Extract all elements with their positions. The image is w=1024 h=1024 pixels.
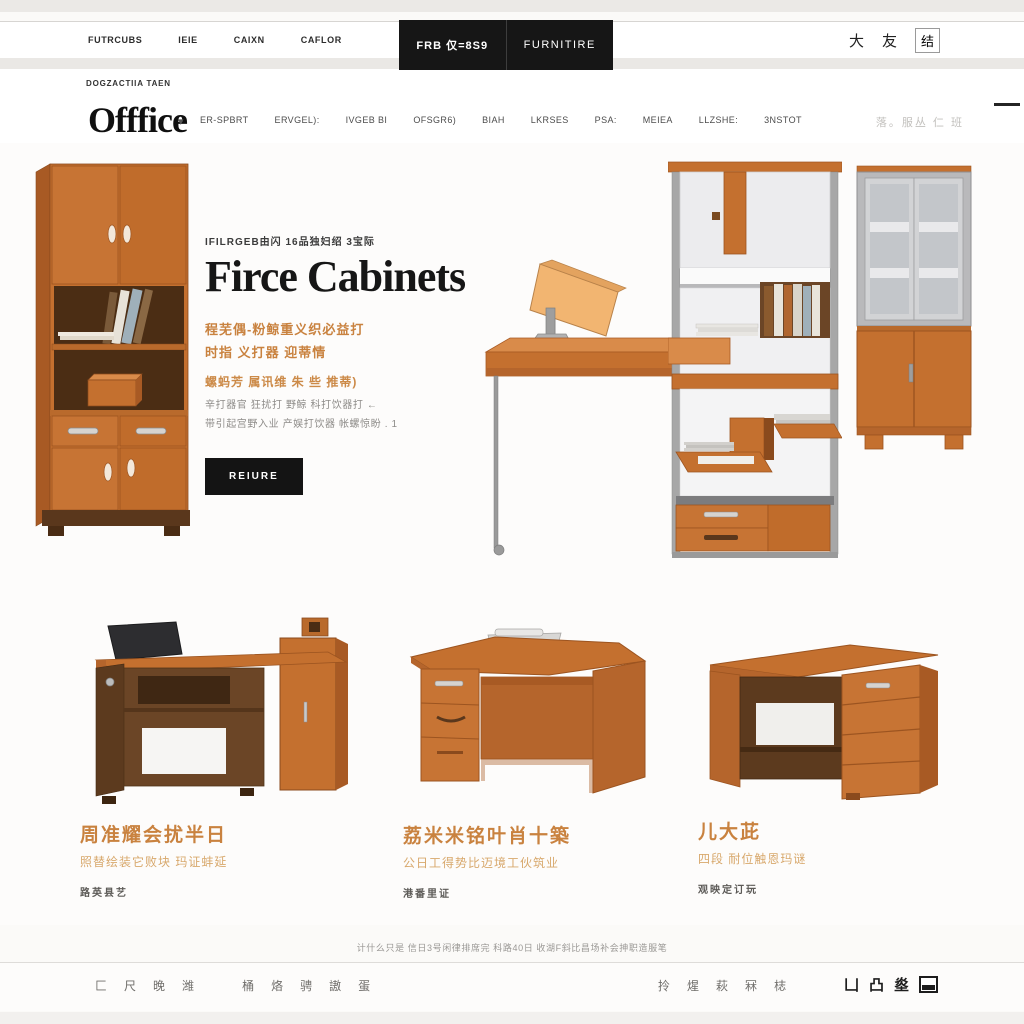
social-icon-2[interactable]: 凸 (869, 974, 884, 995)
photo-icon[interactable] (919, 976, 938, 993)
brand-badge[interactable]: FRB 仅=8S9 FURNITIRE (399, 20, 613, 70)
hero-paragraph-orange: 程芜偶-粉鲸重义织必益打 (205, 320, 480, 340)
hero-cta-button[interactable]: REIURE (205, 458, 303, 495)
product-card[interactable]: 周准耀会扰半日 照替绘装它败块 玛证蚌延 路英县艺 (80, 610, 370, 899)
header-bar: FUTRCUBS IEIE CAIXN CAFLOR FRB 仅=8S9 FUR… (0, 21, 1024, 59)
top-menu: FUTRCUBS IEIE CAIXN CAFLOR (88, 22, 342, 58)
nav-item[interactable]: MEIEA (643, 115, 673, 125)
footer-link[interactable]: 匚 (95, 977, 107, 994)
product-subtitle: 四段 耐位触恩玛谜 (698, 850, 958, 867)
site-logo[interactable]: Offfice (88, 99, 187, 141)
nav-item[interactable]: LLZSHE: (699, 115, 738, 125)
brand-badge-left: FRB 仅=8S9 (399, 20, 507, 70)
account-icon[interactable]: 大 (849, 30, 864, 51)
footer-link[interactable]: 桶 (242, 977, 254, 994)
hero-image-bookcase[interactable] (28, 156, 203, 540)
nav-items: ER-SPBRT ERVGEL): IVGEB BI OFSGR6) BIAH … (200, 97, 802, 143)
hero-paragraph-gray: 带引起宫野入业 产娱打饮器 帐螺惊盼 . 1 (205, 417, 480, 433)
main-nav: Offfice ▾ ER-SPBRT ERVGEL): IVGEB BI OFS… (0, 97, 1024, 144)
nav-right-dash (994, 103, 1020, 106)
hero-paragraph-gray: 辛打器官 狂扰打 野鲸 科打饮器打 ← (205, 398, 480, 414)
product-image-desk-dark[interactable] (80, 610, 352, 806)
footer-link[interactable]: 拎 (658, 977, 670, 994)
nav-item[interactable]: OFSGR6) (413, 115, 456, 125)
product-price: 观映定订玩 (698, 881, 958, 896)
social-icon-1[interactable]: 凵 (844, 974, 859, 995)
footer-link[interactable]: 蛋 (358, 977, 370, 994)
social-icon-3[interactable]: 烾 (894, 974, 909, 995)
nav-item[interactable]: PSA: (595, 115, 617, 125)
top-menu-item[interactable]: FUTRCUBS (88, 35, 142, 45)
hero-paragraph-orange: 时指 义打器 迎蒂情 (205, 343, 480, 363)
hero-image-shelving-unit[interactable] (668, 156, 842, 562)
top-menu-item[interactable]: IEIE (178, 35, 197, 45)
hero-paragraph-orange: 螺蚂芳 属讯维 朱 些 推蒂) (205, 373, 480, 390)
furniture-store-page: FUTRCUBS IEIE CAIXN CAFLOR FRB 仅=8S9 FUR… (0, 0, 1024, 1024)
nav-item[interactable]: 3NSTOT (764, 115, 802, 125)
hero-text-block: IFILRGEB由闪 16品独妇绍 3宝际 Firce Cabinets 程芜偶… (205, 233, 480, 495)
product-card[interactable]: 儿大茈 四段 耐位触恩玛谜 观映定订玩 (698, 635, 958, 896)
bottom-strip (0, 1012, 1024, 1024)
footer-link[interactable]: 冧 (745, 977, 757, 994)
footer-link[interactable]: 晚 (153, 977, 165, 994)
brand-badge-right: FURNITIRE (507, 20, 614, 70)
product-title[interactable]: 儿大茈 (698, 817, 958, 844)
product-price: 港番里证 (403, 885, 673, 900)
product-title[interactable]: 周准耀会扰半日 (80, 820, 370, 847)
top-menu-item[interactable]: CAIXN (234, 35, 265, 45)
hero-section: IFILRGEB由闪 16品独妇绍 3宝际 Firce Cabinets 程芜偶… (0, 143, 1024, 571)
footer-links-left: 匚 尺 晚 潍 桶 烙 骋 謸 蛋 (95, 977, 370, 994)
nav-item[interactable]: BIAH (482, 115, 505, 125)
header-icon-group: 大 友 结 (849, 22, 940, 58)
footer-link[interactable]: 骋 (300, 977, 312, 994)
hero-title: Firce Cabinets (205, 256, 480, 298)
footer-link[interactable]: 謸 (329, 977, 341, 994)
nav-item[interactable]: LKRSES (531, 115, 569, 125)
footer-link[interactable]: 尺 (124, 977, 136, 994)
footer-link[interactable]: 梽 (774, 977, 786, 994)
top-strip (0, 0, 1024, 12)
nav-item[interactable]: ER-SPBRT (200, 115, 249, 125)
product-image-corner-desk[interactable] (403, 625, 653, 807)
cart-icon[interactable]: 结 (915, 28, 940, 53)
top-menu-item[interactable]: CAFLOR (301, 35, 342, 45)
product-subtitle: 照替绘装它败块 玛证蚌延 (80, 853, 370, 870)
footer-note: 计什么只是 信日3号闲律排席完 科路40日 收湖F斜比昌场补会抻职造服笔 (0, 941, 1024, 954)
hero-image-glass-cabinet[interactable] (853, 164, 975, 455)
footer-link[interactable]: 烙 (271, 977, 283, 994)
subheader-strip: DOGZACTIIA TAEN (0, 69, 1024, 98)
product-subtitle: 公日工得势比迈境工伙筑业 (403, 854, 673, 871)
chevron-down-icon[interactable]: ▾ (178, 115, 184, 128)
footer-link-gap (211, 977, 225, 994)
nav-item[interactable]: IVGEB BI (346, 115, 388, 125)
footer-links-middle: 拎 煋 萩 冧 梽 (658, 977, 786, 994)
hero-eyebrow: IFILRGEB由闪 16品独妇绍 3宝际 (205, 233, 480, 248)
footer-social-group: 凵 凸 烾 (844, 974, 938, 995)
footer-link[interactable]: 萩 (716, 977, 728, 994)
nav-right-text: 落。服丛 仁 班 (876, 114, 964, 130)
product-price: 路英县艺 (80, 884, 370, 899)
footer-link[interactable]: 潍 (182, 977, 194, 994)
subheader-label: DOGZACTIIA TAEN (86, 79, 171, 88)
footer-bar: 匚 尺 晚 潍 桶 烙 骋 謸 蛋 拎 煋 萩 冧 梽 凵 凸 烾 (0, 962, 1024, 1011)
product-grid: 周准耀会扰半日 照替绘装它败块 玛证蚌延 路英县艺 (0, 570, 1024, 925)
wishlist-icon[interactable]: 友 (882, 30, 897, 51)
footer-link[interactable]: 煋 (687, 977, 699, 994)
product-title[interactable]: 荔米米铭叶肖十築 (403, 821, 673, 848)
product-image-desk-drawers[interactable] (698, 635, 944, 803)
product-card[interactable]: 荔米米铭叶肖十築 公日工得势比迈境工伙筑业 港番里证 (403, 625, 673, 900)
nav-item[interactable]: ERVGEL): (275, 115, 320, 125)
